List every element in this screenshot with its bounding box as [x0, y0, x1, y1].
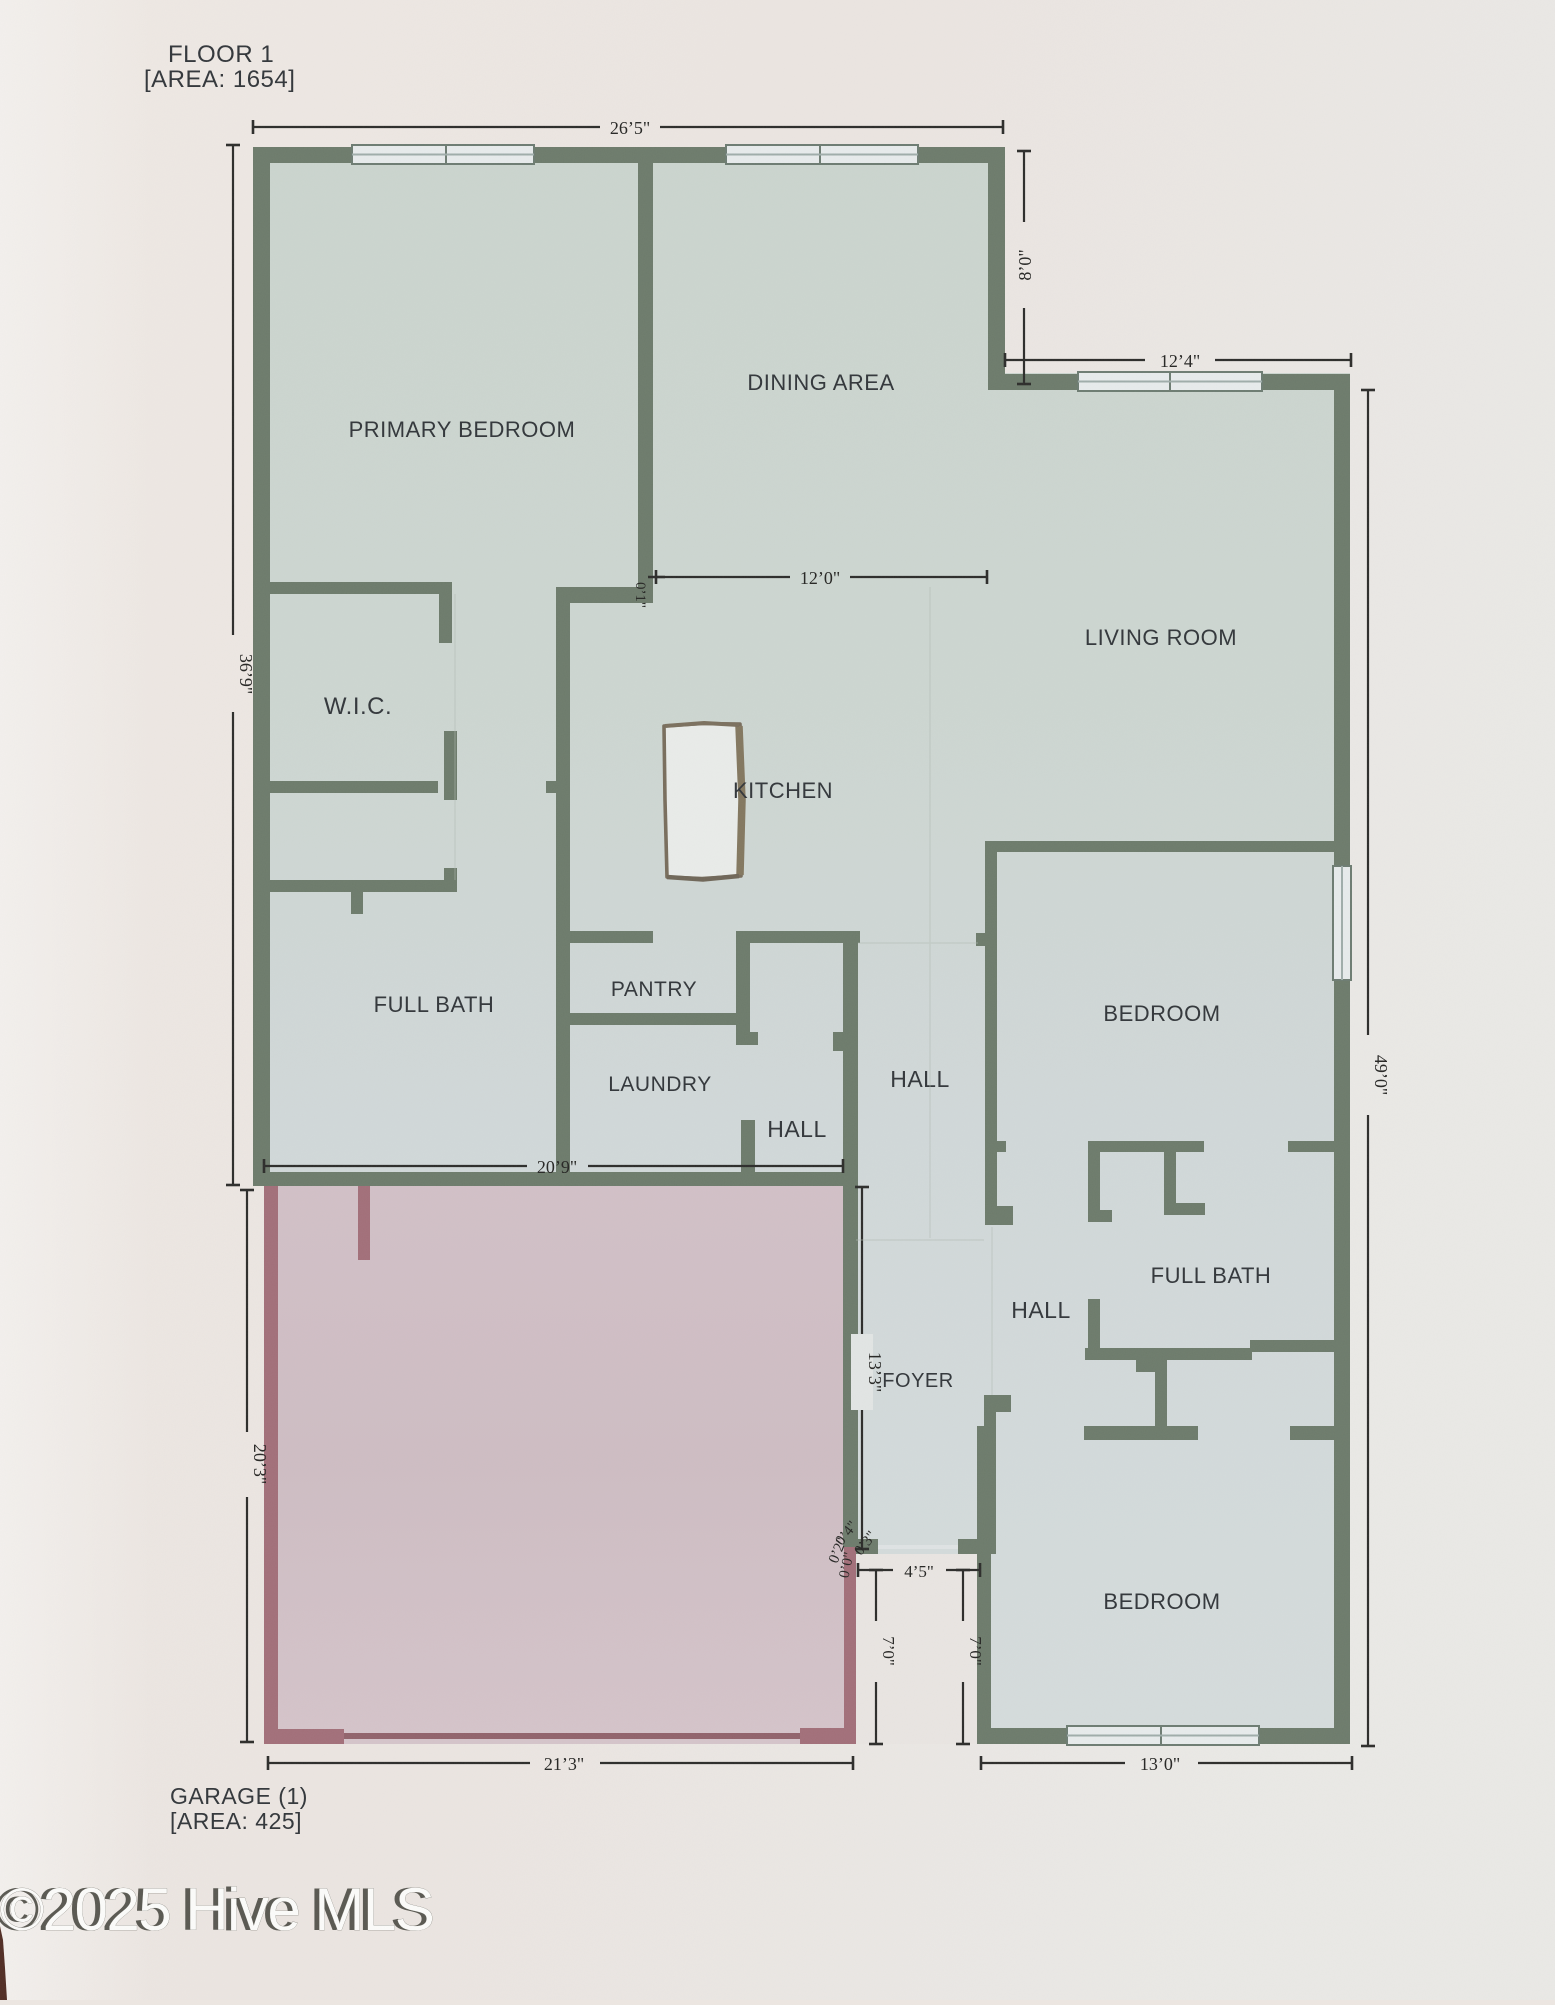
svg-text:21’3": 21’3": [544, 1754, 584, 1774]
svg-text:49’0": 49’0": [1371, 1055, 1391, 1095]
svg-text:20’3": 20’3": [250, 1444, 270, 1484]
svg-text:12’0": 12’0": [800, 568, 840, 588]
svg-text:PRIMARY BEDROOM: PRIMARY BEDROOM: [349, 417, 576, 442]
svg-text:LIVING ROOM: LIVING ROOM: [1085, 625, 1237, 650]
svg-text:PANTRY: PANTRY: [611, 978, 697, 1001]
svg-text:HALL: HALL: [890, 1066, 950, 1092]
svg-text:FULL BATH: FULL BATH: [1151, 1263, 1272, 1288]
svg-text:[AREA: 425]: [AREA: 425]: [170, 1808, 302, 1834]
svg-text:HALL: HALL: [1011, 1297, 1071, 1323]
svg-text:8’0": 8’0": [1015, 249, 1035, 280]
svg-text:FULL BATH: FULL BATH: [374, 992, 495, 1017]
svg-text:FOYER: FOYER: [882, 1370, 953, 1392]
svg-text:[AREA: 1654]: [AREA: 1654]: [144, 66, 295, 93]
svg-text:FLOOR 1: FLOOR 1: [168, 41, 274, 68]
svg-text:7’0": 7’0": [966, 1636, 985, 1666]
svg-text:KITCHEN: KITCHEN: [733, 778, 833, 803]
svg-text:0’1": 0’1": [632, 582, 648, 608]
svg-text:26’5": 26’5": [610, 118, 650, 138]
svg-text:BEDROOM: BEDROOM: [1103, 1001, 1220, 1026]
svg-text:12’4": 12’4": [1160, 351, 1200, 371]
svg-text:GARAGE (1): GARAGE (1): [170, 1783, 308, 1809]
svg-text:13’0": 13’0": [1140, 1754, 1180, 1774]
svg-text:W.I.C.: W.I.C.: [324, 693, 392, 720]
svg-text:7’0": 7’0": [879, 1636, 898, 1666]
svg-text:BEDROOM: BEDROOM: [1103, 1589, 1220, 1614]
svg-text:20’9": 20’9": [537, 1157, 577, 1177]
svg-text:4’5": 4’5": [904, 1562, 934, 1581]
svg-text:36’9": 36’9": [236, 654, 256, 694]
svg-text:LAUNDRY: LAUNDRY: [608, 1073, 711, 1096]
svg-text:©2025 Hive MLS: ©2025 Hive MLS: [0, 1876, 433, 1943]
svg-text:DINING AREA: DINING AREA: [747, 370, 894, 395]
svg-text:HALL: HALL: [767, 1116, 827, 1142]
